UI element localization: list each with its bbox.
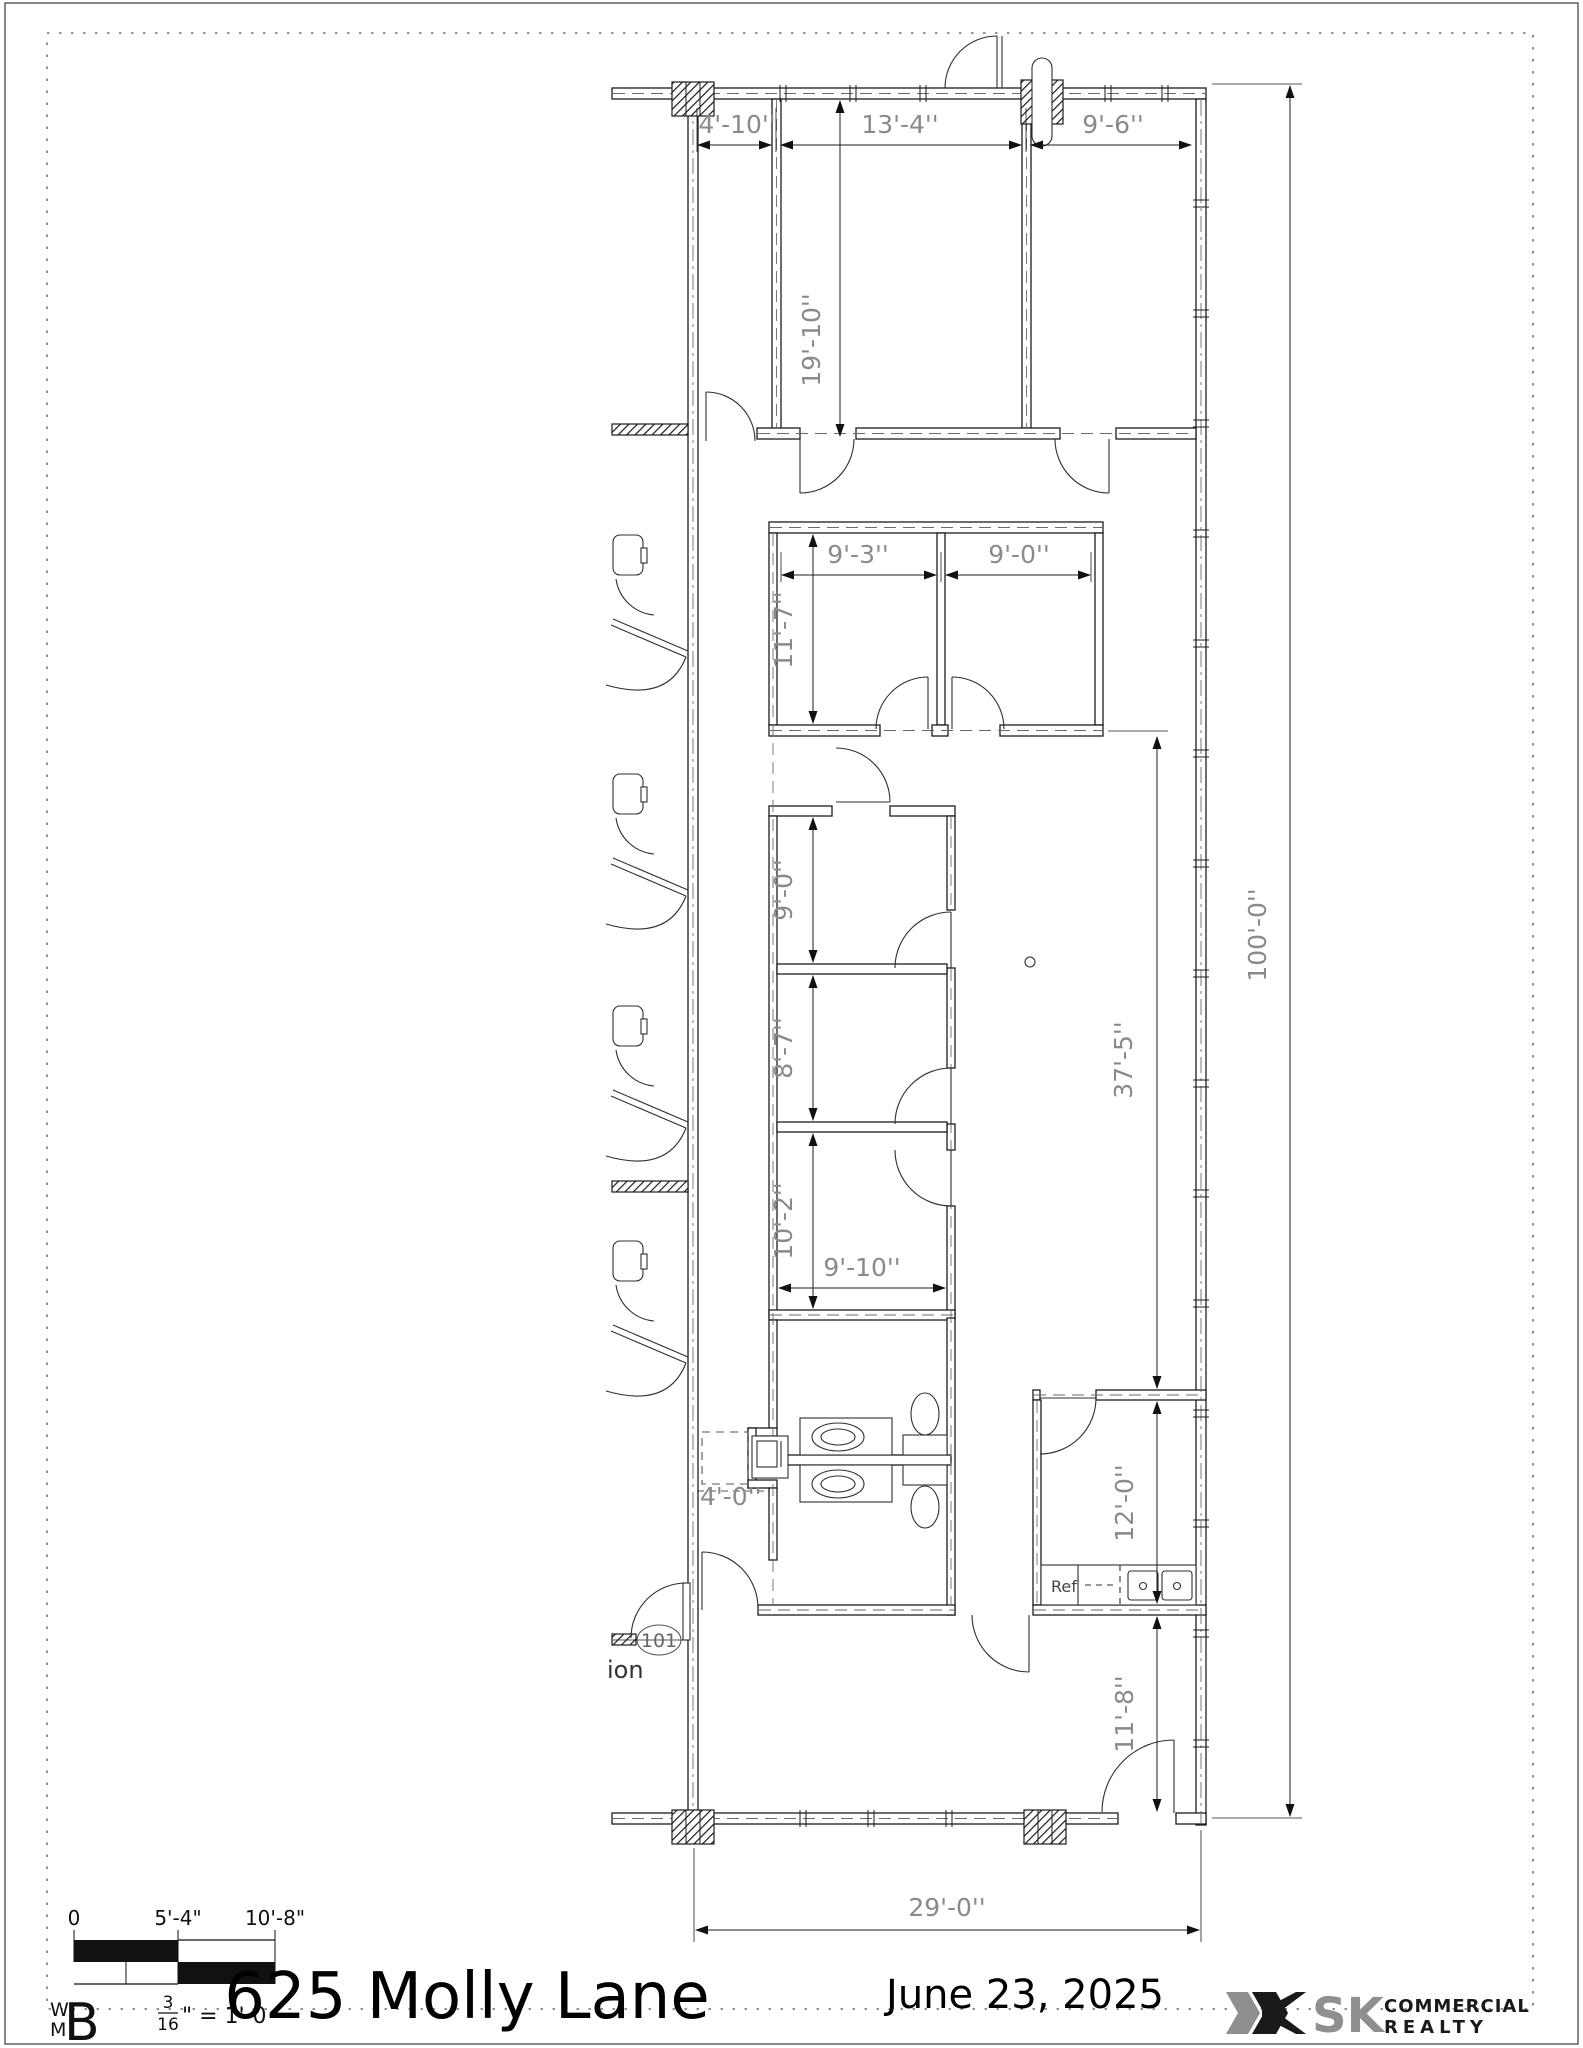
sk-logo-text: SK — [1312, 1988, 1386, 2044]
roof-drain-pipe — [1032, 58, 1052, 146]
stack-top-door — [836, 748, 890, 802]
dim-9-0b: 9'-0'' — [769, 859, 798, 920]
scale-fraction-denominator: 16 — [157, 2015, 179, 2035]
storefront-entry-3 — [606, 1006, 688, 1161]
mid-room-door-right — [952, 677, 1004, 729]
dim-12-0: 12'-0'' — [1110, 1464, 1139, 1541]
columns — [612, 58, 1066, 1844]
room-door-10-2 — [895, 1150, 951, 1206]
sk-logo-mark — [1226, 1992, 1306, 2034]
title-block: 0 5'-4" 10'-8" W M B 3 16 " = 1'-0 ' 625… — [50, 1906, 1164, 2048]
dim-9-3: 9'-3'' — [827, 540, 888, 569]
restroom-1 — [800, 1393, 947, 1455]
room-door-9-0 — [895, 912, 951, 968]
dim-11-8: 11'-8'' — [1110, 1675, 1139, 1752]
clearance-box — [702, 1432, 748, 1484]
dim-8-7: 8'-7'' — [769, 1017, 798, 1078]
dim-100-0: 100'-0'' — [1243, 888, 1272, 981]
architect-monogram: W M B — [50, 1993, 100, 2048]
toilet-tank — [903, 1435, 947, 1455]
demising-wall-stub-2 — [612, 1181, 688, 1192]
sk-logo: SK COMMERCIAL REALTY — [1226, 1988, 1530, 2044]
storefront-entry-4 — [606, 1241, 688, 1396]
demising-wall-stub-3 — [612, 1634, 636, 1645]
hallway-door-right — [1055, 439, 1109, 493]
toilet-bowl — [911, 1486, 939, 1528]
room-tag: 101 — [641, 1630, 677, 1652]
top-entry-door — [945, 36, 1002, 88]
break-room-counter: Ref — [1041, 1565, 1196, 1605]
column-bottom-left — [672, 1810, 714, 1844]
dim-9-10: 9'-10'' — [823, 1253, 900, 1282]
hallway-door-left — [800, 439, 854, 493]
storefront-entries — [606, 535, 688, 1396]
dim-13-4: 13'-4'' — [861, 110, 938, 139]
corridor-door — [706, 392, 755, 441]
scale-bar-segment-1 — [74, 1940, 178, 1962]
ref-label: Ref — [1051, 1577, 1077, 1596]
scale-tick-2: 10'-8" — [245, 1906, 305, 1930]
dim-4-10: 4'-10'' — [698, 110, 775, 139]
clipped-room-label: ion — [607, 1656, 644, 1684]
scale-tick-0: 0 — [68, 1906, 81, 1930]
column-bottom-mid — [1024, 1810, 1066, 1844]
toilet-bowl — [911, 1393, 939, 1435]
sk-logo-line1: COMMERCIAL — [1384, 1996, 1530, 2017]
dim-4-0: 4'-0'' — [700, 1482, 761, 1511]
floor-outlet — [1025, 957, 1035, 967]
sheet-date: June 23, 2025 — [883, 1972, 1164, 2018]
sheet-title: 625 Molly Lane — [224, 1960, 709, 2034]
break-room-side-door — [972, 1615, 1029, 1672]
dim-19-10: 19'-10'' — [797, 293, 826, 386]
dim-11-7: 11'-7'' — [769, 591, 798, 668]
scale-fraction-numerator: 3 — [163, 1993, 174, 2013]
dim-37-5: 37'-5'' — [1109, 1021, 1138, 1098]
drawing-sheet: 101 — [0, 0, 1583, 2048]
dim-9-0a: 9'-0'' — [988, 540, 1049, 569]
restroom-2 — [800, 1465, 947, 1528]
monogram-b: B — [64, 1993, 100, 2048]
sk-logo-line2: REALTY — [1384, 2017, 1488, 2038]
restroom-corridor-door — [702, 1552, 758, 1610]
toilet-tank — [903, 1465, 947, 1485]
dim-10-2: 10'-2'' — [769, 1182, 798, 1259]
storefront-entry-2 — [606, 774, 688, 929]
storefront-entry-1 — [606, 535, 688, 690]
break-room-top-door — [1040, 1398, 1096, 1454]
dim-9-6: 9'-6'' — [1082, 110, 1143, 139]
bottom-wall-stub — [1176, 1813, 1206, 1824]
demising-wall-stub-1 — [612, 424, 688, 435]
mid-room-door-left — [876, 677, 928, 729]
walls — [612, 88, 1206, 1825]
floor-plan-svg: 101 — [0, 0, 1583, 2048]
room-door-8-7 — [895, 1068, 951, 1124]
dim-29-0: 29'-0'' — [908, 1893, 985, 1922]
scale-tick-1: 5'-4" — [154, 1906, 201, 1930]
